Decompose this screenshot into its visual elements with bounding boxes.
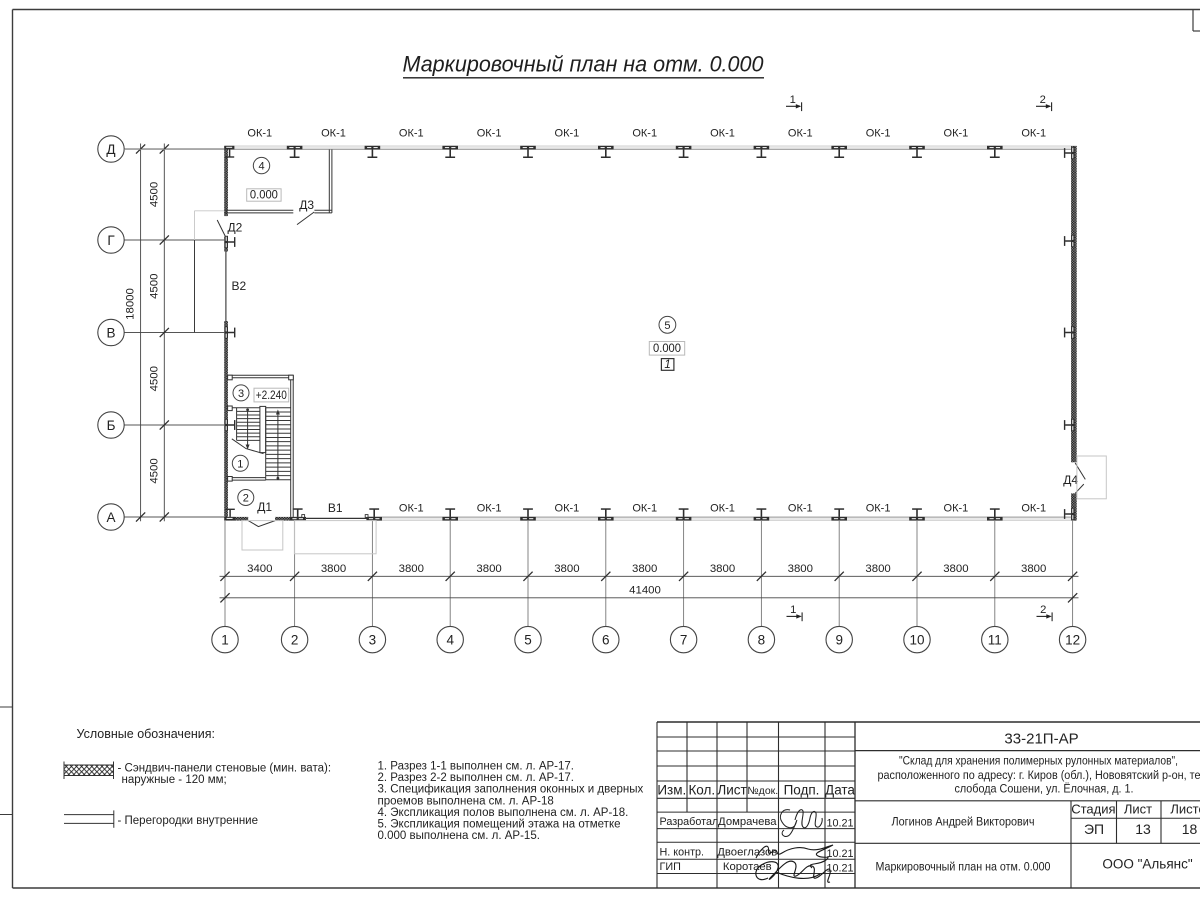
svg-text:1. Разрез 1-1 выполнен см. л.: 1. Разрез 1-1 выполнен см. л. АР-17. [378,761,575,773]
svg-text:Лист: Лист [1124,802,1152,817]
svg-text:1: 1 [664,359,670,371]
svg-text:3: 3 [238,388,244,400]
svg-text:2. Разрез 2-2 выполнен см. л.: 2. Разрез 2-2 выполнен см. л. АР-17. [378,772,575,784]
svg-text:ОК-1: ОК-1 [866,127,891,139]
svg-text:Изм.: Изм. [657,783,686,798]
svg-text:3800: 3800 [788,563,813,575]
svg-text:13: 13 [1135,821,1151,837]
svg-text:4500: 4500 [149,182,161,207]
svg-text:Логинов Андрей Викторович: Логинов Андрей Викторович [892,815,1035,829]
svg-text:ОК-1: ОК-1 [944,127,969,139]
svg-text:3800: 3800 [710,563,735,575]
svg-text:Н. контр.: Н. контр. [660,846,705,858]
svg-text:3800: 3800 [321,563,346,575]
svg-text:Дата: Дата [825,783,855,798]
svg-text:ОК-1: ОК-1 [1021,503,1046,515]
svg-text:Разработал: Разработал [660,816,719,828]
svg-text:5: 5 [524,632,532,647]
svg-text:0.000 выполнена см. л. АР-15.: 0.000 выполнена см. л. АР-15. [378,830,540,842]
svg-text:2: 2 [243,492,249,504]
svg-text:ОК-1: ОК-1 [399,503,424,515]
svg-text:Маркировочный план на отм. 0.0: Маркировочный план на отм. 0.000 [403,52,764,77]
svg-text:3800: 3800 [865,563,890,575]
svg-text:Д2: Д2 [227,220,242,234]
svg-text:5: 5 [664,320,670,332]
svg-text:+2.240: +2.240 [256,388,287,402]
svg-text:Лист: Лист [717,783,746,798]
svg-text:"Склад для хранения полимерных: "Склад для хранения полимерных рулонных … [899,753,1178,767]
svg-text:ОК-1: ОК-1 [632,127,657,139]
svg-text:Д4: Д4 [1063,473,1078,487]
svg-text:10: 10 [909,632,924,647]
svg-text:3: 3 [369,632,377,647]
svg-text:11: 11 [988,632,1002,647]
svg-text:Г: Г [107,233,115,248]
svg-text:18000: 18000 [125,288,137,320]
svg-text:Д: Д [106,142,115,157]
svg-text:Домрачева: Домрачева [718,816,777,828]
svg-text:1: 1 [790,604,796,616]
svg-text:ГИП: ГИП [660,861,681,873]
svg-text:3800: 3800 [1021,563,1046,575]
svg-text:ЭП: ЭП [1084,821,1104,837]
svg-text:ОК-1: ОК-1 [247,127,272,139]
svg-text:3800: 3800 [632,563,657,575]
svg-text:10.21: 10.21 [826,818,853,830]
svg-text:ОК-1: ОК-1 [399,127,424,139]
svg-text:ОК-1: ОК-1 [632,503,657,515]
svg-text:ОК-1: ОК-1 [944,503,969,515]
svg-text:ОК-1: ОК-1 [477,127,502,139]
svg-text:7: 7 [680,632,688,647]
svg-text:ОК-1: ОК-1 [321,127,346,139]
svg-text:4500: 4500 [149,366,161,391]
svg-text:В1: В1 [328,501,343,515]
svg-text:Кол.: Кол. [688,783,715,798]
svg-text:Стадия: Стадия [1071,802,1115,817]
svg-text:5. Экспликация помещений этажа: 5. Экспликация помещений этажа на отметк… [378,819,621,831]
svg-text:8: 8 [758,632,766,647]
svg-text:3400: 3400 [247,563,272,575]
svg-text:41400: 41400 [629,584,661,596]
svg-text:Листов: Листов [1170,802,1200,817]
svg-text:2: 2 [1040,604,1046,616]
svg-text:4500: 4500 [149,458,161,483]
svg-text:Условные обозначения:: Условные обозначения: [77,727,216,741]
svg-text:расположенного по адресу: г. К: расположенного по адресу: г. Киров (обл.… [878,768,1200,782]
svg-text:ОК-1: ОК-1 [710,503,735,515]
svg-text:3800: 3800 [554,563,579,575]
svg-text:В: В [106,325,115,340]
svg-text:3. Спецификация заполнения око: 3. Спецификация заполнения оконных и две… [378,784,644,796]
svg-text:ОК-1: ОК-1 [788,127,813,139]
svg-text:№док.: №док. [747,785,778,797]
svg-text:Маркировочный план на отм. 0.0: Маркировочный план на отм. 0.000 [876,860,1051,874]
svg-text:2: 2 [291,632,299,647]
svg-text:0.000: 0.000 [250,187,278,201]
svg-text:ОК-1: ОК-1 [710,127,735,139]
svg-text:2: 2 [1040,94,1046,106]
svg-text:10.21: 10.21 [826,848,853,860]
svg-text:- Перегородки внутренние: - Перегородки внутренние [118,815,259,827]
svg-text:ОК-1: ОК-1 [866,503,891,515]
svg-text:- Сэндвич-панели стеновые (мин: - Сэндвич-панели стеновые (мин. вата): [118,763,332,775]
svg-text:Д1: Д1 [257,500,272,514]
svg-text:ООО "Альянс": ООО "Альянс" [1102,856,1192,871]
svg-text:ОК-1: ОК-1 [477,503,502,515]
svg-text:В2: В2 [232,279,247,293]
svg-text:ОК-1: ОК-1 [555,503,580,515]
svg-text:3800: 3800 [943,563,968,575]
svg-text:наружные - 120 мм;: наружные - 120 мм; [122,774,227,786]
svg-text:1: 1 [221,632,229,647]
svg-text:6: 6 [602,632,610,647]
svg-text:4. Экспликация полов выполнена: 4. Экспликация полов выполнена см. л. АР… [378,807,629,819]
svg-text:9: 9 [835,632,843,647]
svg-text:А: А [106,510,115,525]
svg-text:12: 12 [1065,632,1080,647]
svg-text:3800: 3800 [476,563,501,575]
svg-text:ОК-1: ОК-1 [788,503,813,515]
svg-text:Д3: Д3 [299,198,314,212]
svg-text:4: 4 [258,161,264,173]
svg-text:4: 4 [446,632,454,647]
svg-text:ОК-1: ОК-1 [555,127,580,139]
svg-text:Б: Б [107,418,116,433]
svg-text:0.000: 0.000 [653,341,681,355]
svg-text:1: 1 [237,458,243,470]
svg-text:Подп.: Подп. [784,783,820,798]
svg-text:3800: 3800 [399,563,424,575]
svg-text:проемов выполнена см. л. АР-18: проемов выполнена см. л. АР-18 [378,795,554,807]
svg-text:ОК-1: ОК-1 [1021,127,1046,139]
svg-text:33-21П-АР: 33-21П-АР [1004,731,1078,748]
svg-text:1: 1 [790,94,796,106]
svg-text:4500: 4500 [149,274,161,299]
svg-text:18: 18 [1182,821,1198,837]
svg-text:слобода Сошени, ул. Ёлочная, д: слобода Сошени, ул. Ёлочная, д. 1. [955,782,1134,796]
